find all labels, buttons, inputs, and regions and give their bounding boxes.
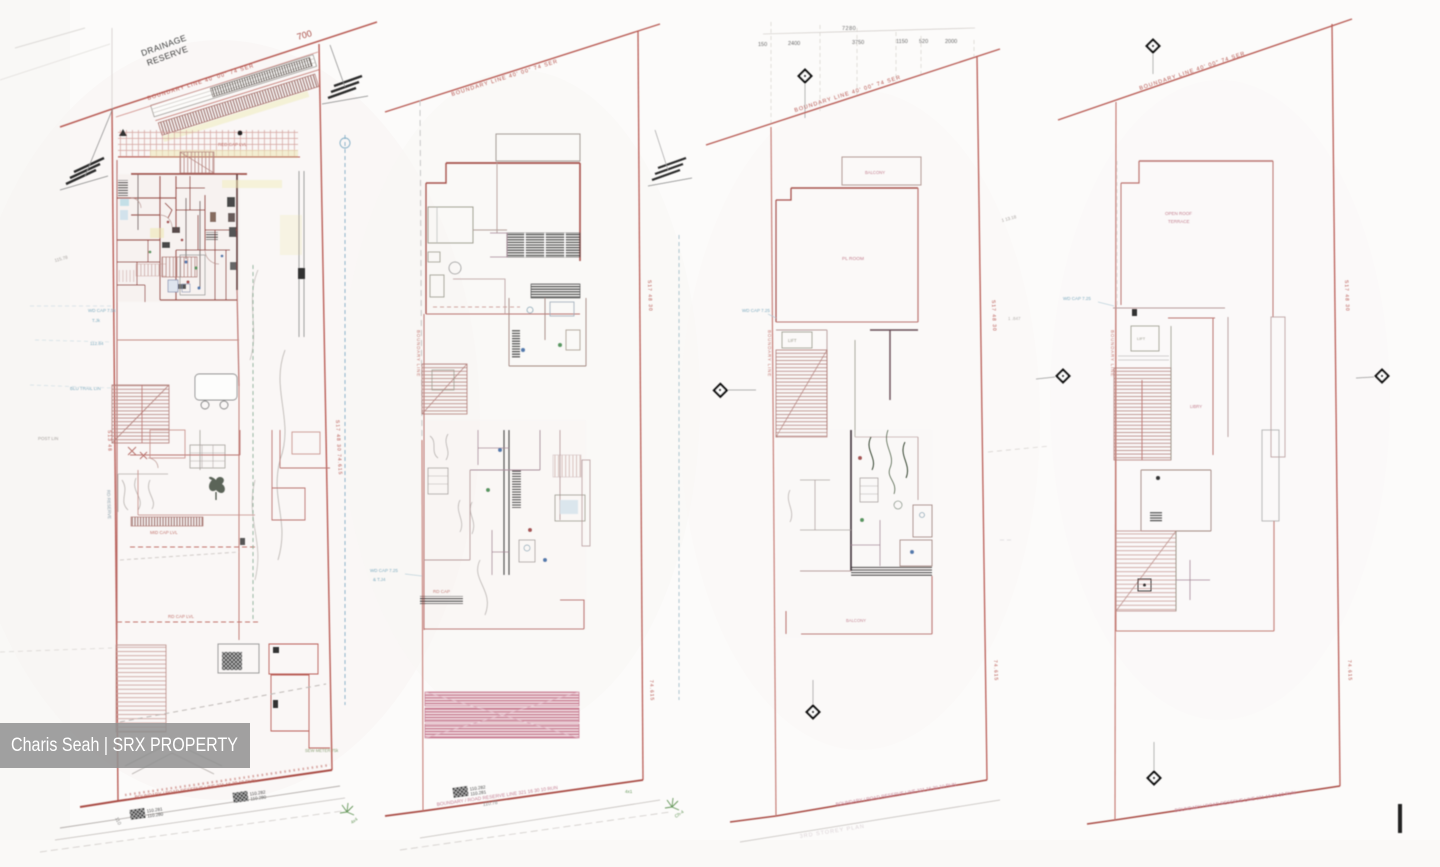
svg-text:& T.J4: & T.J4 (373, 577, 386, 582)
svg-text:150: 150 (758, 42, 767, 48)
svg-text:74.615: 74.615 (648, 680, 655, 701)
svg-text:WD CAP 7.25: WD CAP 7.25 (1063, 296, 1091, 301)
svg-text:OPEN ROOF: OPEN ROOF (1165, 211, 1192, 216)
svg-text:7280: 7280 (842, 26, 856, 32)
svg-text:1 .847: 1 .847 (1008, 316, 1021, 321)
svg-text:MID CAP LVL: MID CAP LVL (150, 530, 178, 535)
svg-text:SEW METER 75k: SEW METER 75k (305, 748, 339, 753)
svg-text:POST LIN: POST LIN (38, 436, 58, 441)
svg-text:RD CAP: RD CAP (433, 589, 450, 594)
svg-text:TERRACE: TERRACE (1168, 219, 1190, 224)
svg-text:RD RESERVE: RD RESERVE (106, 490, 112, 519)
svg-text:WD CAP 7.25: WD CAP 7.25 (742, 308, 770, 313)
svg-text:LIFT: LIFT (788, 338, 797, 343)
svg-text:BALCONY: BALCONY (846, 618, 866, 623)
svg-text:BOUNDARY LINE: BOUNDARY LINE (416, 330, 421, 377)
svg-text:WD CAP 7.25: WD CAP 7.25 (370, 568, 398, 573)
svg-text:74.615: 74.615 (1346, 660, 1353, 681)
svg-text:BALCONY: BALCONY (865, 170, 885, 175)
svg-text:T.Jk: T.Jk (92, 318, 101, 323)
svg-text:LIFT: LIFT (1137, 336, 1146, 341)
svg-text:3750: 3750 (852, 40, 864, 46)
svg-text:2400: 2400 (788, 41, 800, 47)
svg-text:1150: 1150 (896, 39, 908, 45)
svg-text:PL ROOM: PL ROOM (842, 256, 864, 262)
svg-text:520: 520 (919, 39, 928, 45)
svg-text:74.615: 74.615 (992, 660, 999, 681)
svg-text:S17 48 30: S17 48 30 (1343, 280, 1350, 312)
svg-text:S17 48 30: S17 48 30 (646, 280, 653, 312)
svg-text:WD CAP 7.5k: WD CAP 7.5k (88, 308, 116, 313)
svg-text:BOUNDARY LINE: BOUNDARY LINE (767, 330, 772, 377)
svg-text:RED CAP LVL: RED CAP LVL (218, 142, 247, 147)
svg-text:LIBRY: LIBRY (1190, 404, 1202, 409)
svg-text:RD CAP LVL: RD CAP LVL (168, 614, 194, 619)
svg-text:S13 48: S13 48 (106, 430, 112, 452)
svg-text:S17 48 30: S17 48 30 (990, 300, 997, 332)
svg-text:4x1: 4x1 (625, 789, 633, 794)
svg-text:2000: 2000 (945, 39, 957, 45)
svg-text:Charis Seah | SRX PROPERTY: Charis Seah | SRX PROPERTY (11, 735, 238, 756)
